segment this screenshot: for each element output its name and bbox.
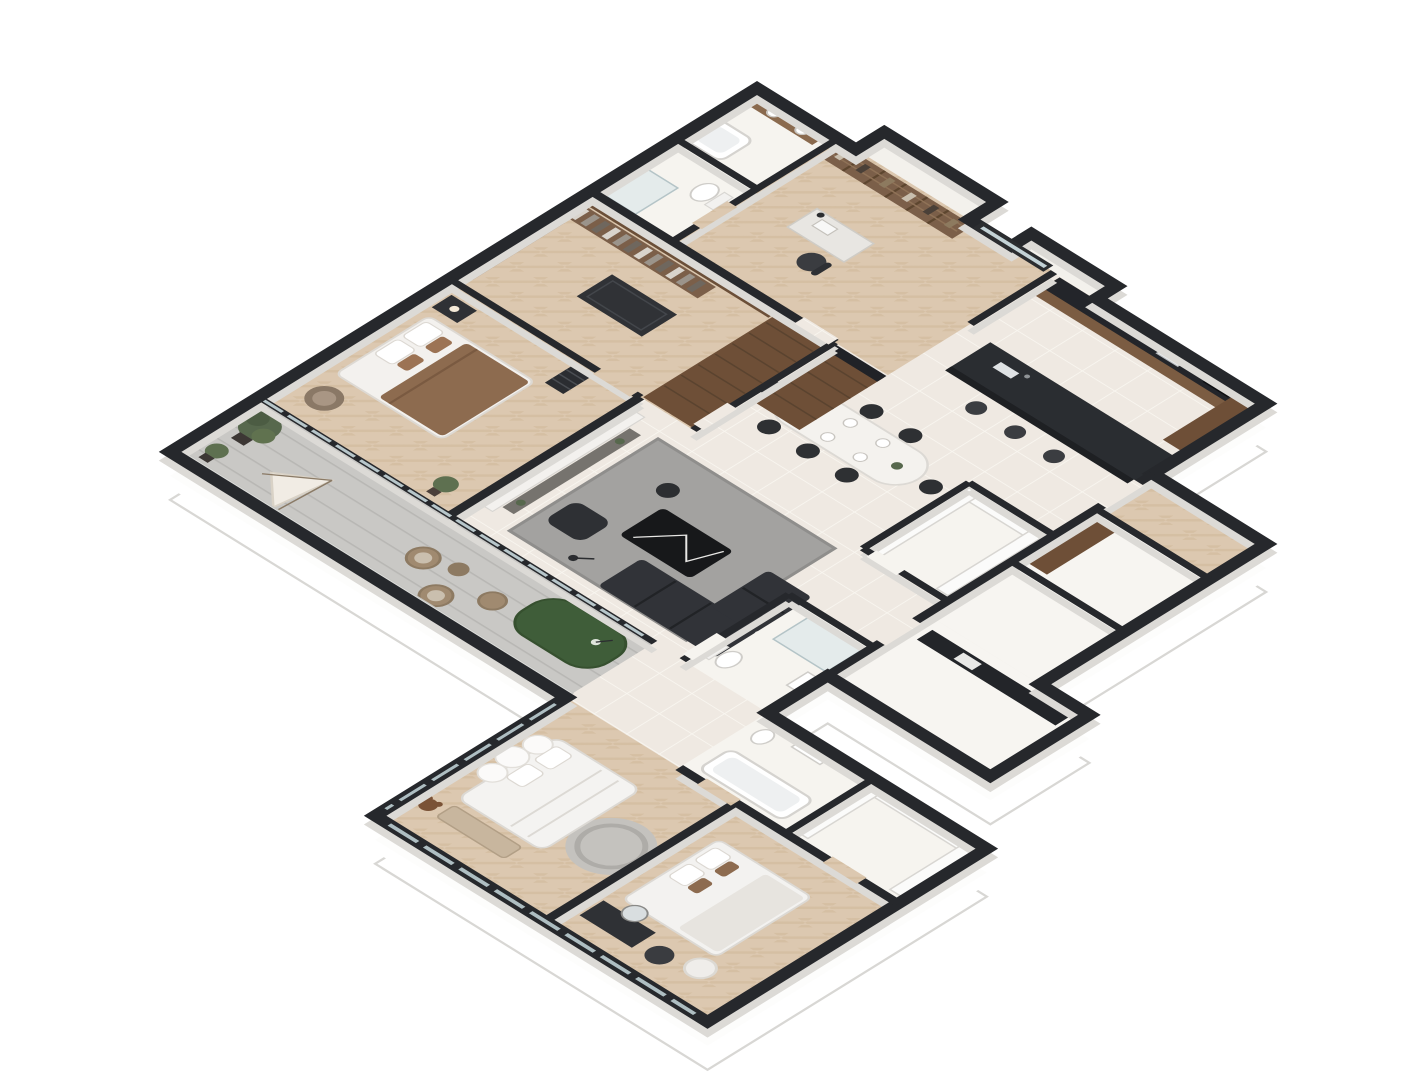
floor-plan xyxy=(0,70,1420,1030)
floor-plan-render xyxy=(0,0,1420,1080)
